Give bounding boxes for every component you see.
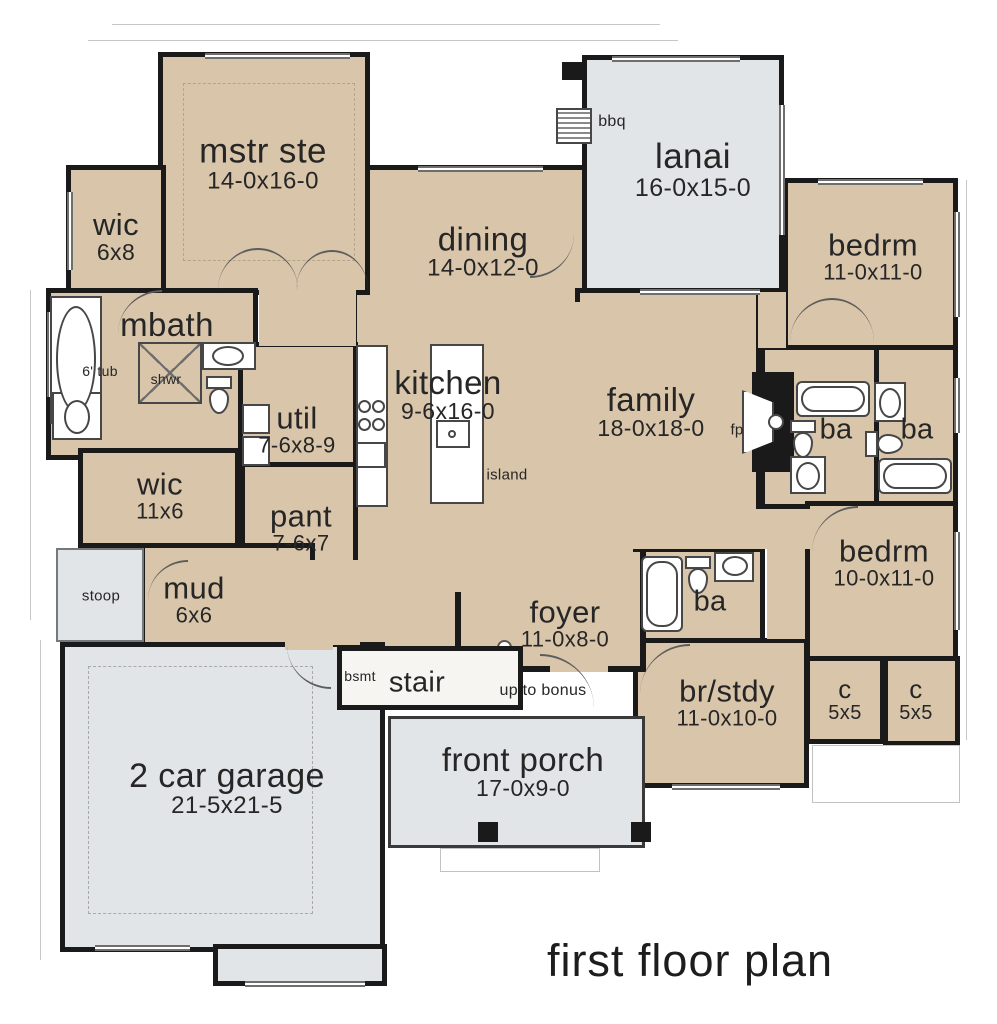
- annotation-tub: 6' tub: [82, 363, 118, 379]
- room-label-closet-1: c 5x5: [828, 676, 861, 724]
- room-label-bedrm-low: bedrm 10-0x11-0: [833, 535, 934, 590]
- room-label-ba-foyer: ba: [694, 586, 727, 619]
- floor-patch: [767, 509, 805, 639]
- annotation-bbq: bbq: [598, 113, 626, 131]
- room-label-pant: pant 7-6x7: [270, 500, 332, 555]
- dimension-line: [40, 640, 41, 960]
- room-label-ba-1: ba: [820, 414, 853, 447]
- floor-patch: [259, 290, 356, 346]
- room-label-garage: 2 car garage 21-5x21-5: [129, 759, 325, 819]
- bathtub-basin: [801, 386, 865, 412]
- window: [672, 784, 780, 790]
- porch-column: [478, 822, 498, 842]
- room-label-br-stdy: br/stdy 11-0x10-0: [676, 675, 777, 730]
- room-label-wic-upper: wic 6x8: [93, 209, 139, 265]
- porch-steps: [440, 848, 600, 872]
- bathtub-basin: [646, 561, 678, 627]
- room-label-family: family 18-0x18-0: [597, 383, 704, 441]
- dimension-line: [88, 40, 678, 41]
- toilet: [865, 431, 905, 457]
- dimension-line: [30, 290, 31, 620]
- room-label-kitchen: kitchen 9-6x16-0: [394, 366, 501, 424]
- room-label-mstr-ste: mstr ste 14-0x16-0: [199, 133, 327, 194]
- patio-outline: [812, 745, 960, 803]
- window: [954, 378, 960, 433]
- toilet: [206, 376, 232, 416]
- room-label-dining: dining 14-0x12-0: [427, 222, 539, 281]
- bathtub-basin: [883, 463, 947, 489]
- window: [245, 981, 365, 987]
- post: [562, 62, 584, 80]
- cooktop-burner: [358, 400, 371, 413]
- dimension-line: [966, 180, 967, 740]
- window: [640, 289, 760, 295]
- sink: [64, 400, 90, 434]
- cooktop-burner: [372, 418, 385, 431]
- drawing-title: first floor plan: [547, 935, 833, 987]
- annotation-fp: fp: [730, 422, 743, 439]
- annotation-island: island: [487, 467, 528, 484]
- room-label-mud: mud 6x6: [163, 572, 225, 627]
- oven: [356, 442, 386, 468]
- wall-segment: [608, 666, 645, 672]
- floor-patch: [305, 560, 360, 645]
- floor-patch: [758, 292, 786, 348]
- room-label-foyer: foyer 11-0x8-0: [521, 596, 609, 651]
- sink-drain: [448, 430, 456, 438]
- garage-step: [213, 944, 387, 986]
- window: [612, 56, 740, 62]
- floor-plan: mstr ste 14-0x16-0 wic 6x8 mbath dining …: [0, 0, 997, 1024]
- sink: [879, 388, 901, 418]
- dimension-line: [112, 24, 660, 25]
- bbq-grill: [556, 108, 592, 144]
- window: [418, 166, 543, 172]
- room-label-wic-lower: wic 11x6: [136, 468, 184, 523]
- cooktop-burner: [358, 418, 371, 431]
- room-label-lanai: lanai 16-0x15-0: [635, 139, 751, 201]
- window: [205, 53, 350, 59]
- room-label-stair: stair: [389, 667, 445, 700]
- window: [95, 945, 190, 951]
- sink: [722, 556, 748, 576]
- window: [954, 212, 960, 317]
- porch-column: [631, 822, 651, 842]
- window: [954, 532, 960, 630]
- sink: [212, 346, 244, 366]
- room-label-ba-2: ba: [901, 414, 934, 447]
- fireplace-hearth: [768, 414, 784, 430]
- sink: [796, 462, 820, 490]
- window: [67, 192, 73, 270]
- room-label-mbath: mbath: [120, 308, 214, 342]
- room-label-bedrm-top: bedrm 11-0x11-0: [823, 229, 922, 284]
- bathtub-basin: [56, 306, 96, 412]
- annotation-shwr: shwr: [151, 371, 182, 387]
- annotation-up-to-bonus: up to bonus: [500, 682, 587, 700]
- room-label-stoop: stoop: [82, 588, 120, 605]
- window: [818, 179, 923, 185]
- cooktop-burner: [372, 400, 385, 413]
- room-label-util: util 7-6x8-9: [258, 402, 335, 457]
- room-label-front-porch: front porch 17-0x9-0: [442, 743, 604, 801]
- annotation-bsmt: bsmt: [344, 668, 376, 684]
- window: [779, 105, 785, 235]
- room-label-closet-2: c 5x5: [899, 676, 932, 724]
- toilet: [790, 420, 816, 460]
